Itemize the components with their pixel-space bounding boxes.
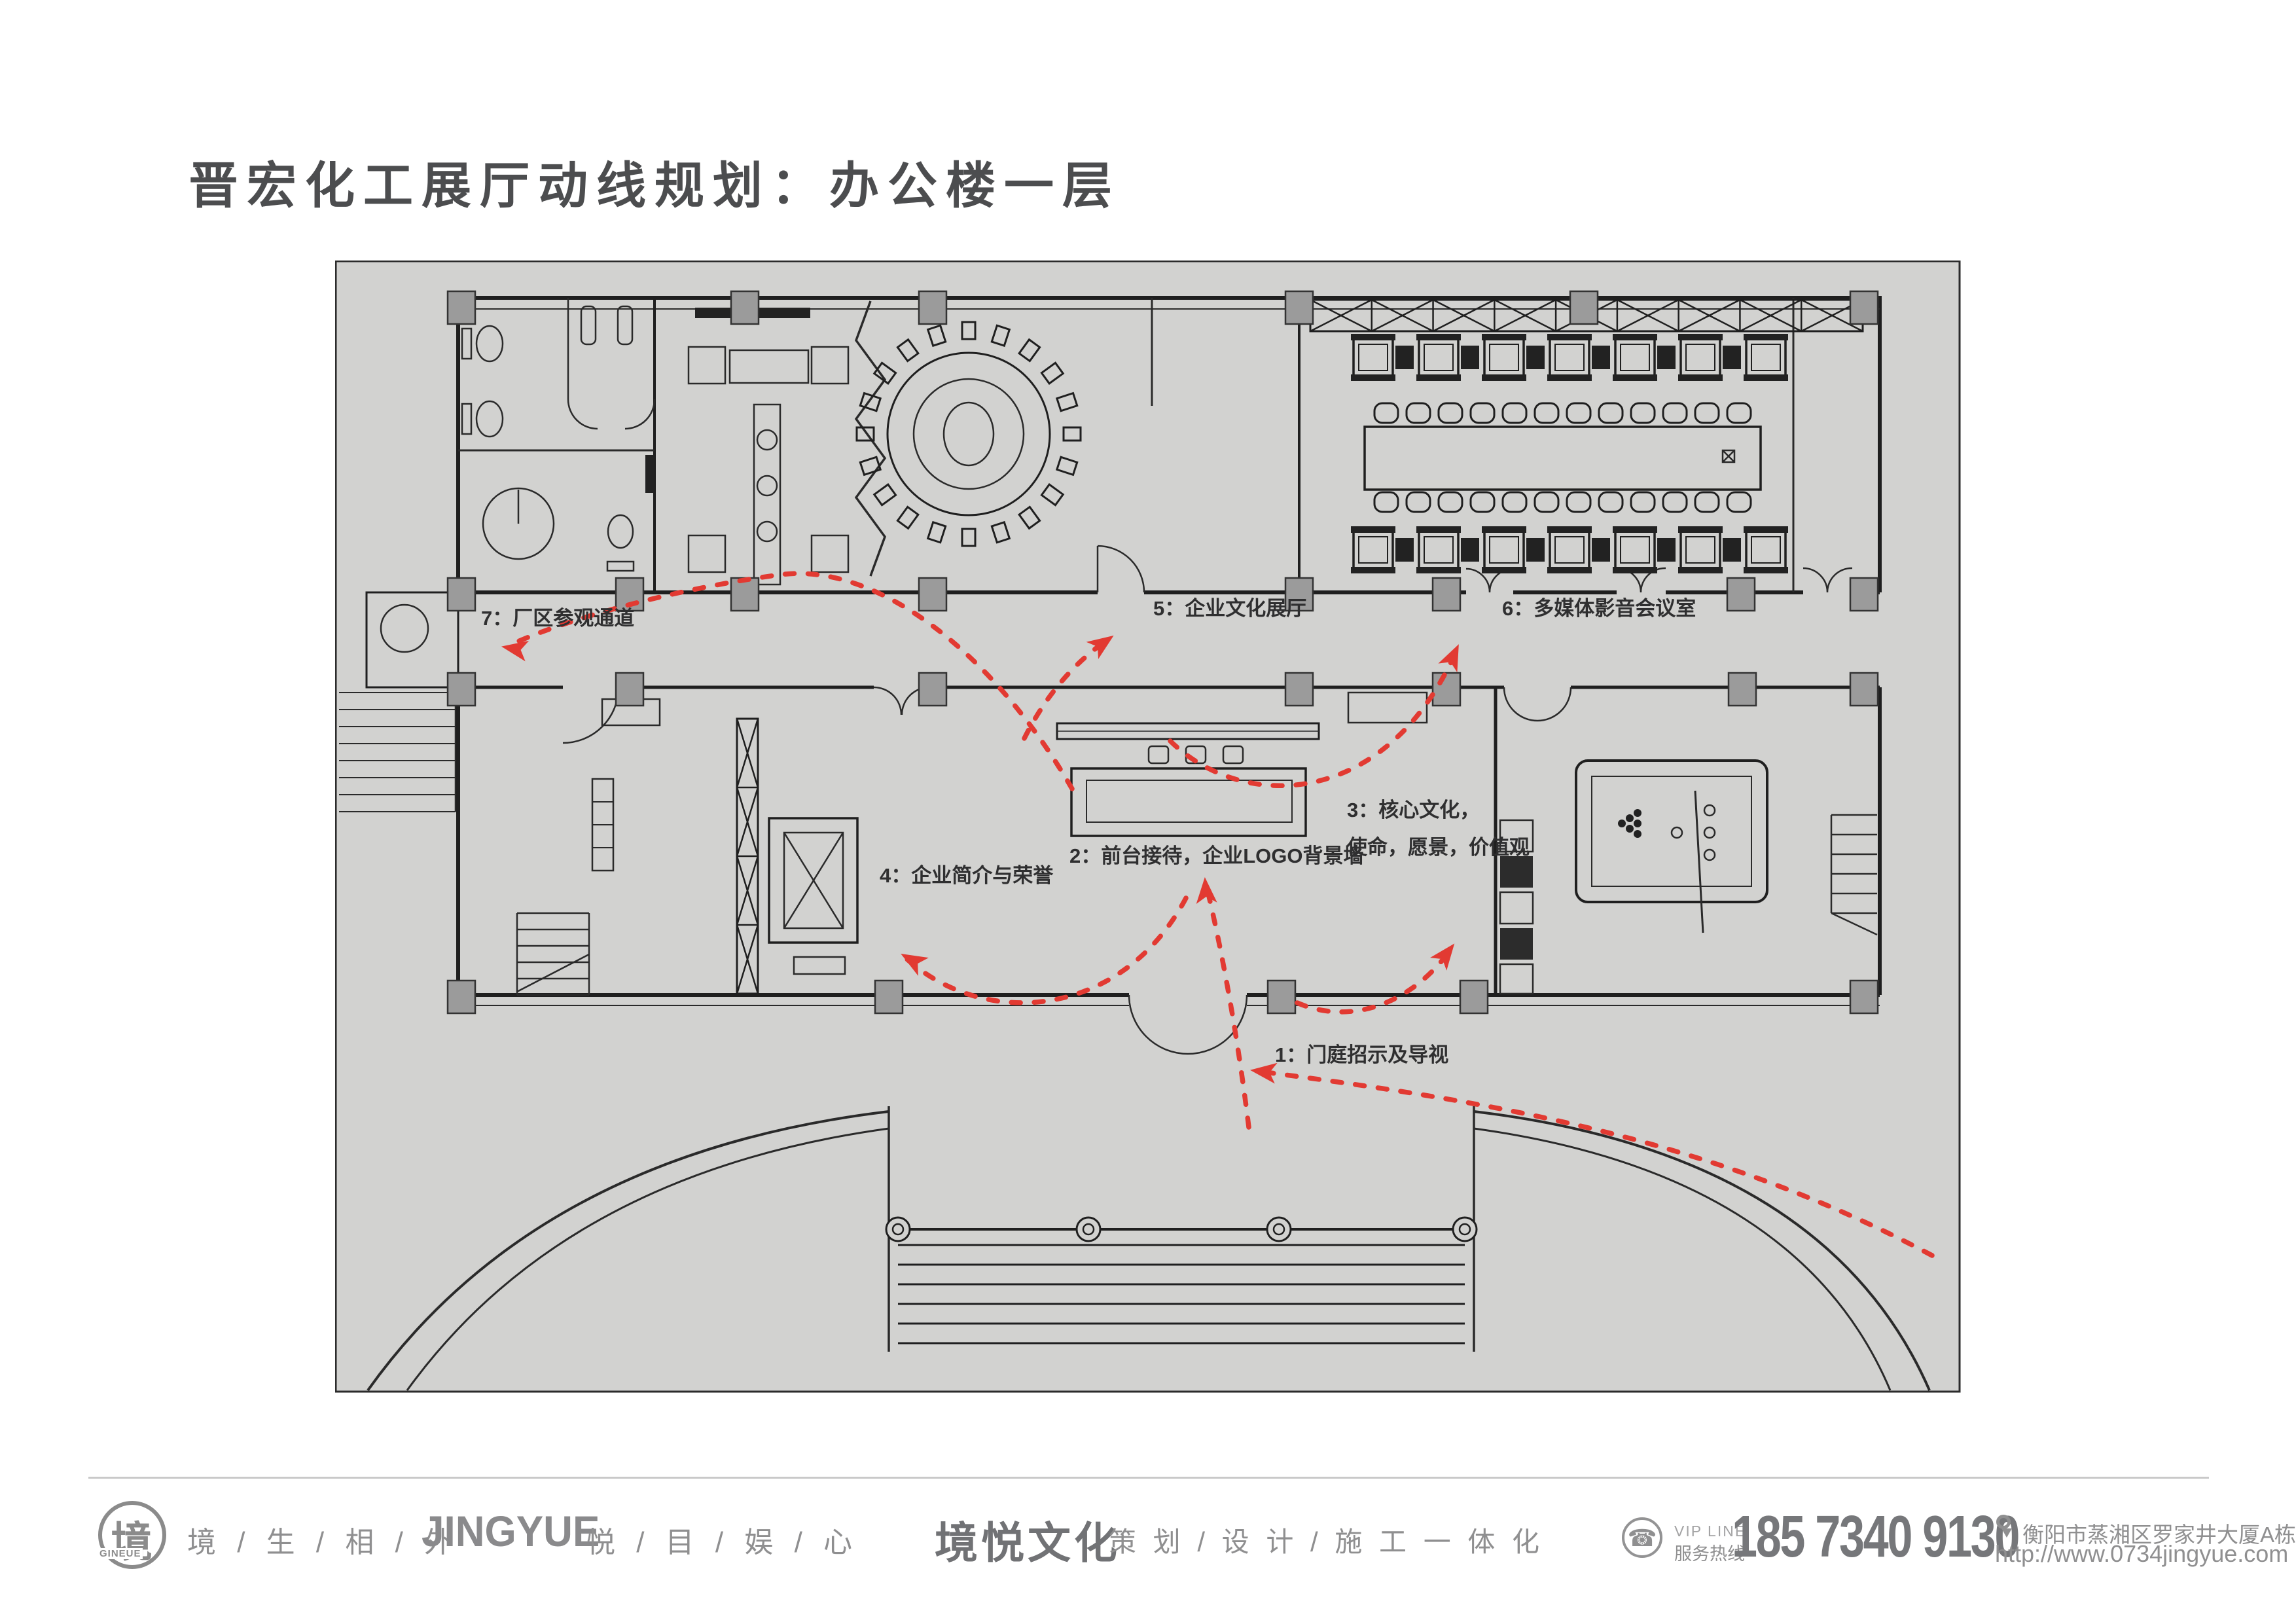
- plan-label-6: 6：多媒体影音会议室: [1502, 597, 1696, 620]
- services-line: 策 划 / 设 计 / 施 工 一 体 化: [1109, 1520, 1544, 1560]
- plan-label-1: 1：门庭招示及导视: [1275, 1043, 1448, 1066]
- plan-label-3-line1: 3：核心文化，: [1347, 799, 1480, 821]
- floor-plan: 7：厂区参观通道 5：企业文化展厅 6：多媒体影音会议室 4：企业简介与荣誉 2…: [335, 261, 1961, 1393]
- phone-glyph: ☎: [1628, 1525, 1657, 1551]
- plan-label-7: 7：厂区参观通道: [481, 607, 634, 630]
- plan-label-2: 2：前台接待，企业LOGO背景墙: [1069, 844, 1364, 867]
- plan-label-3-line2: 使命，愿景，价值观: [1346, 836, 1530, 859]
- location-pin-icon: [1996, 1515, 2011, 1529]
- footer-divider: [88, 1477, 2209, 1479]
- footer-slogan-right: 悦 / 目 / 娱 / 心: [586, 1519, 859, 1561]
- drawing-sheet: [336, 261, 1960, 1392]
- company-logo-icon: 境 GINEUE: [98, 1501, 166, 1569]
- phone-icon: ☎: [1622, 1517, 1662, 1558]
- plan-label-5: 5：企业文化展厅: [1153, 597, 1306, 620]
- logo-glyph: 境: [111, 1509, 152, 1569]
- footer-slogan-left: 境 / 生 / 相 / 外: [187, 1519, 459, 1561]
- page-title: 晋宏化工展厅动线规划：办公楼一层: [188, 145, 1121, 217]
- logo-subtext: GINEUE: [98, 1548, 143, 1559]
- brand-wordmark: JINGYUE: [422, 1506, 600, 1556]
- phone-number: 185 7340 9130: [1732, 1504, 2018, 1571]
- footer-website[interactable]: http://www.0734jingyue.com: [1995, 1540, 2288, 1568]
- chinese-wordmark: 境悦文化: [935, 1508, 1121, 1571]
- plan-label-4: 4：企业简介与荣誉: [880, 864, 1054, 887]
